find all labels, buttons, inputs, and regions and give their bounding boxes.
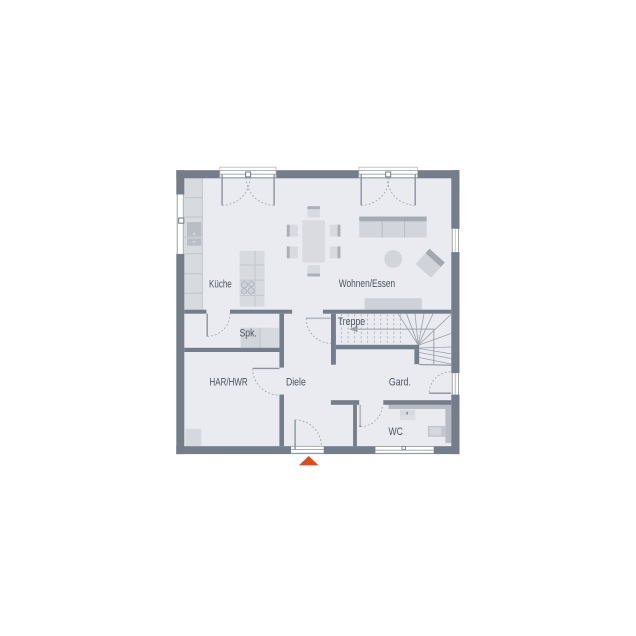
svg-text:Treppe: Treppe	[338, 316, 366, 328]
svg-text:HAR/HWR: HAR/HWR	[210, 377, 248, 389]
svg-text:Spk.: Spk.	[239, 327, 257, 339]
svg-text:Diele: Diele	[286, 376, 306, 388]
svg-text:Küche: Küche	[209, 279, 232, 291]
svg-text:Gard.: Gard.	[389, 377, 411, 389]
svg-text:WC: WC	[389, 426, 403, 438]
svg-text:Wohnen/Essen: Wohnen/Essen	[339, 278, 395, 290]
